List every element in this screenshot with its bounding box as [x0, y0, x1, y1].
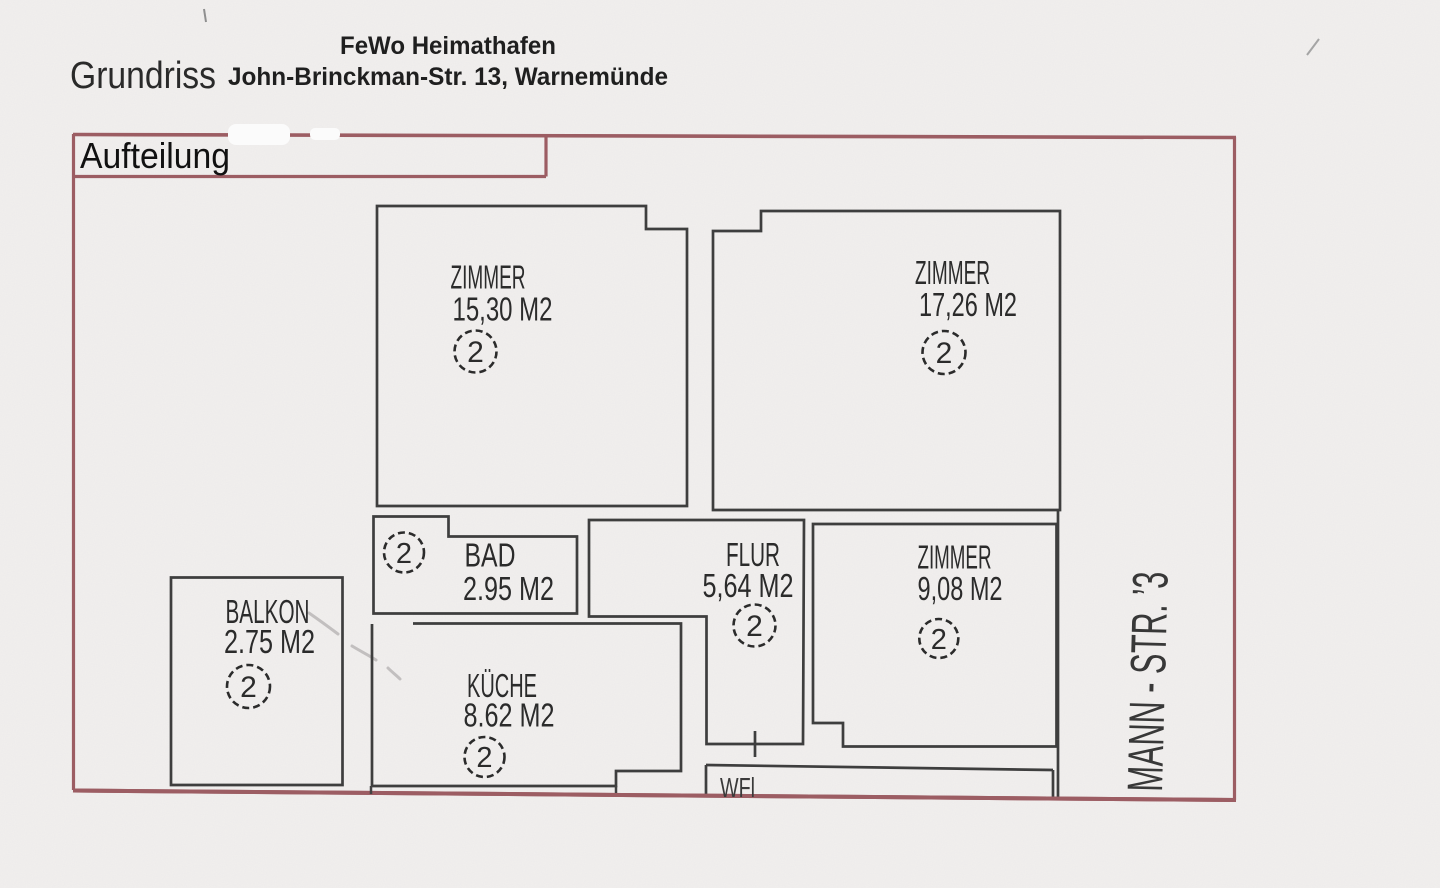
svg-text:John-Brinckman-Str. 13, Warnem: John-Brinckman-Str. 13, Warnemünde [228, 63, 668, 91]
svg-text:MANN - STR. ’3: MANN - STR. ’3 [1117, 571, 1179, 792]
svg-text:Grundriss: Grundriss [70, 55, 216, 97]
svg-text:2: 2 [476, 742, 492, 774]
svg-text:2.75 M2: 2.75 M2 [224, 623, 315, 660]
svg-text:FeWo Heimathafen: FeWo Heimathafen [340, 32, 556, 60]
svg-text:2: 2 [467, 336, 484, 369]
svg-text:2: 2 [931, 624, 947, 656]
svg-text:2.95 M2: 2.95 M2 [463, 570, 554, 607]
svg-text:15,30 M2: 15,30 M2 [453, 291, 553, 328]
svg-text:2: 2 [396, 538, 412, 570]
svg-text:17,26 M2: 17,26 M2 [919, 286, 1017, 323]
svg-text:WFl: WFl [720, 772, 755, 803]
svg-text:9,08 M2: 9,08 M2 [918, 570, 1003, 607]
svg-text:2: 2 [936, 337, 953, 370]
svg-text:8.62 M2: 8.62 M2 [464, 697, 555, 734]
svg-text:2: 2 [746, 610, 763, 643]
svg-text:5,64 M2: 5,64 M2 [703, 567, 794, 604]
svg-text:Aufteilung: Aufteilung [80, 135, 230, 176]
svg-text:2: 2 [240, 671, 257, 704]
svg-text:BAD: BAD [465, 537, 516, 574]
